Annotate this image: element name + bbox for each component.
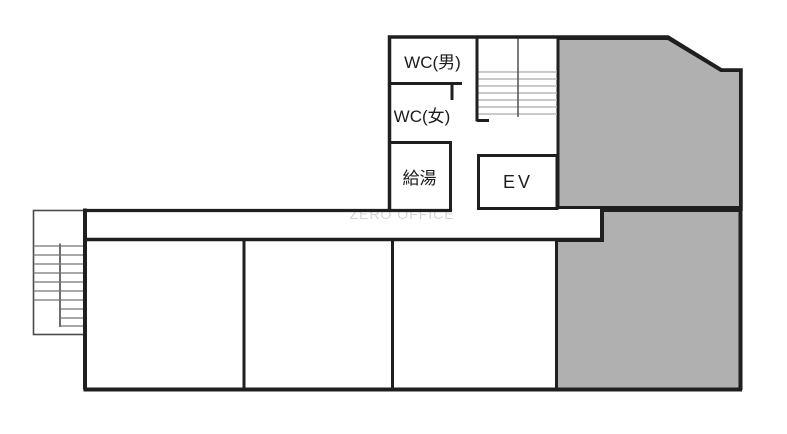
lower-gray-area bbox=[557, 211, 741, 390]
left-staircase bbox=[34, 211, 86, 335]
floor-plan-drawing bbox=[0, 0, 787, 434]
left-staircase-treads-right bbox=[60, 246, 85, 326]
left-staircase-treads-left bbox=[34, 246, 61, 300]
top-staircase bbox=[479, 38, 558, 117]
lower-room-dividers bbox=[244, 240, 393, 390]
elevator-shaft bbox=[479, 156, 558, 209]
gray-areas bbox=[557, 39, 741, 390]
floor-plan-page: ZERO OFFICE bbox=[0, 0, 787, 434]
